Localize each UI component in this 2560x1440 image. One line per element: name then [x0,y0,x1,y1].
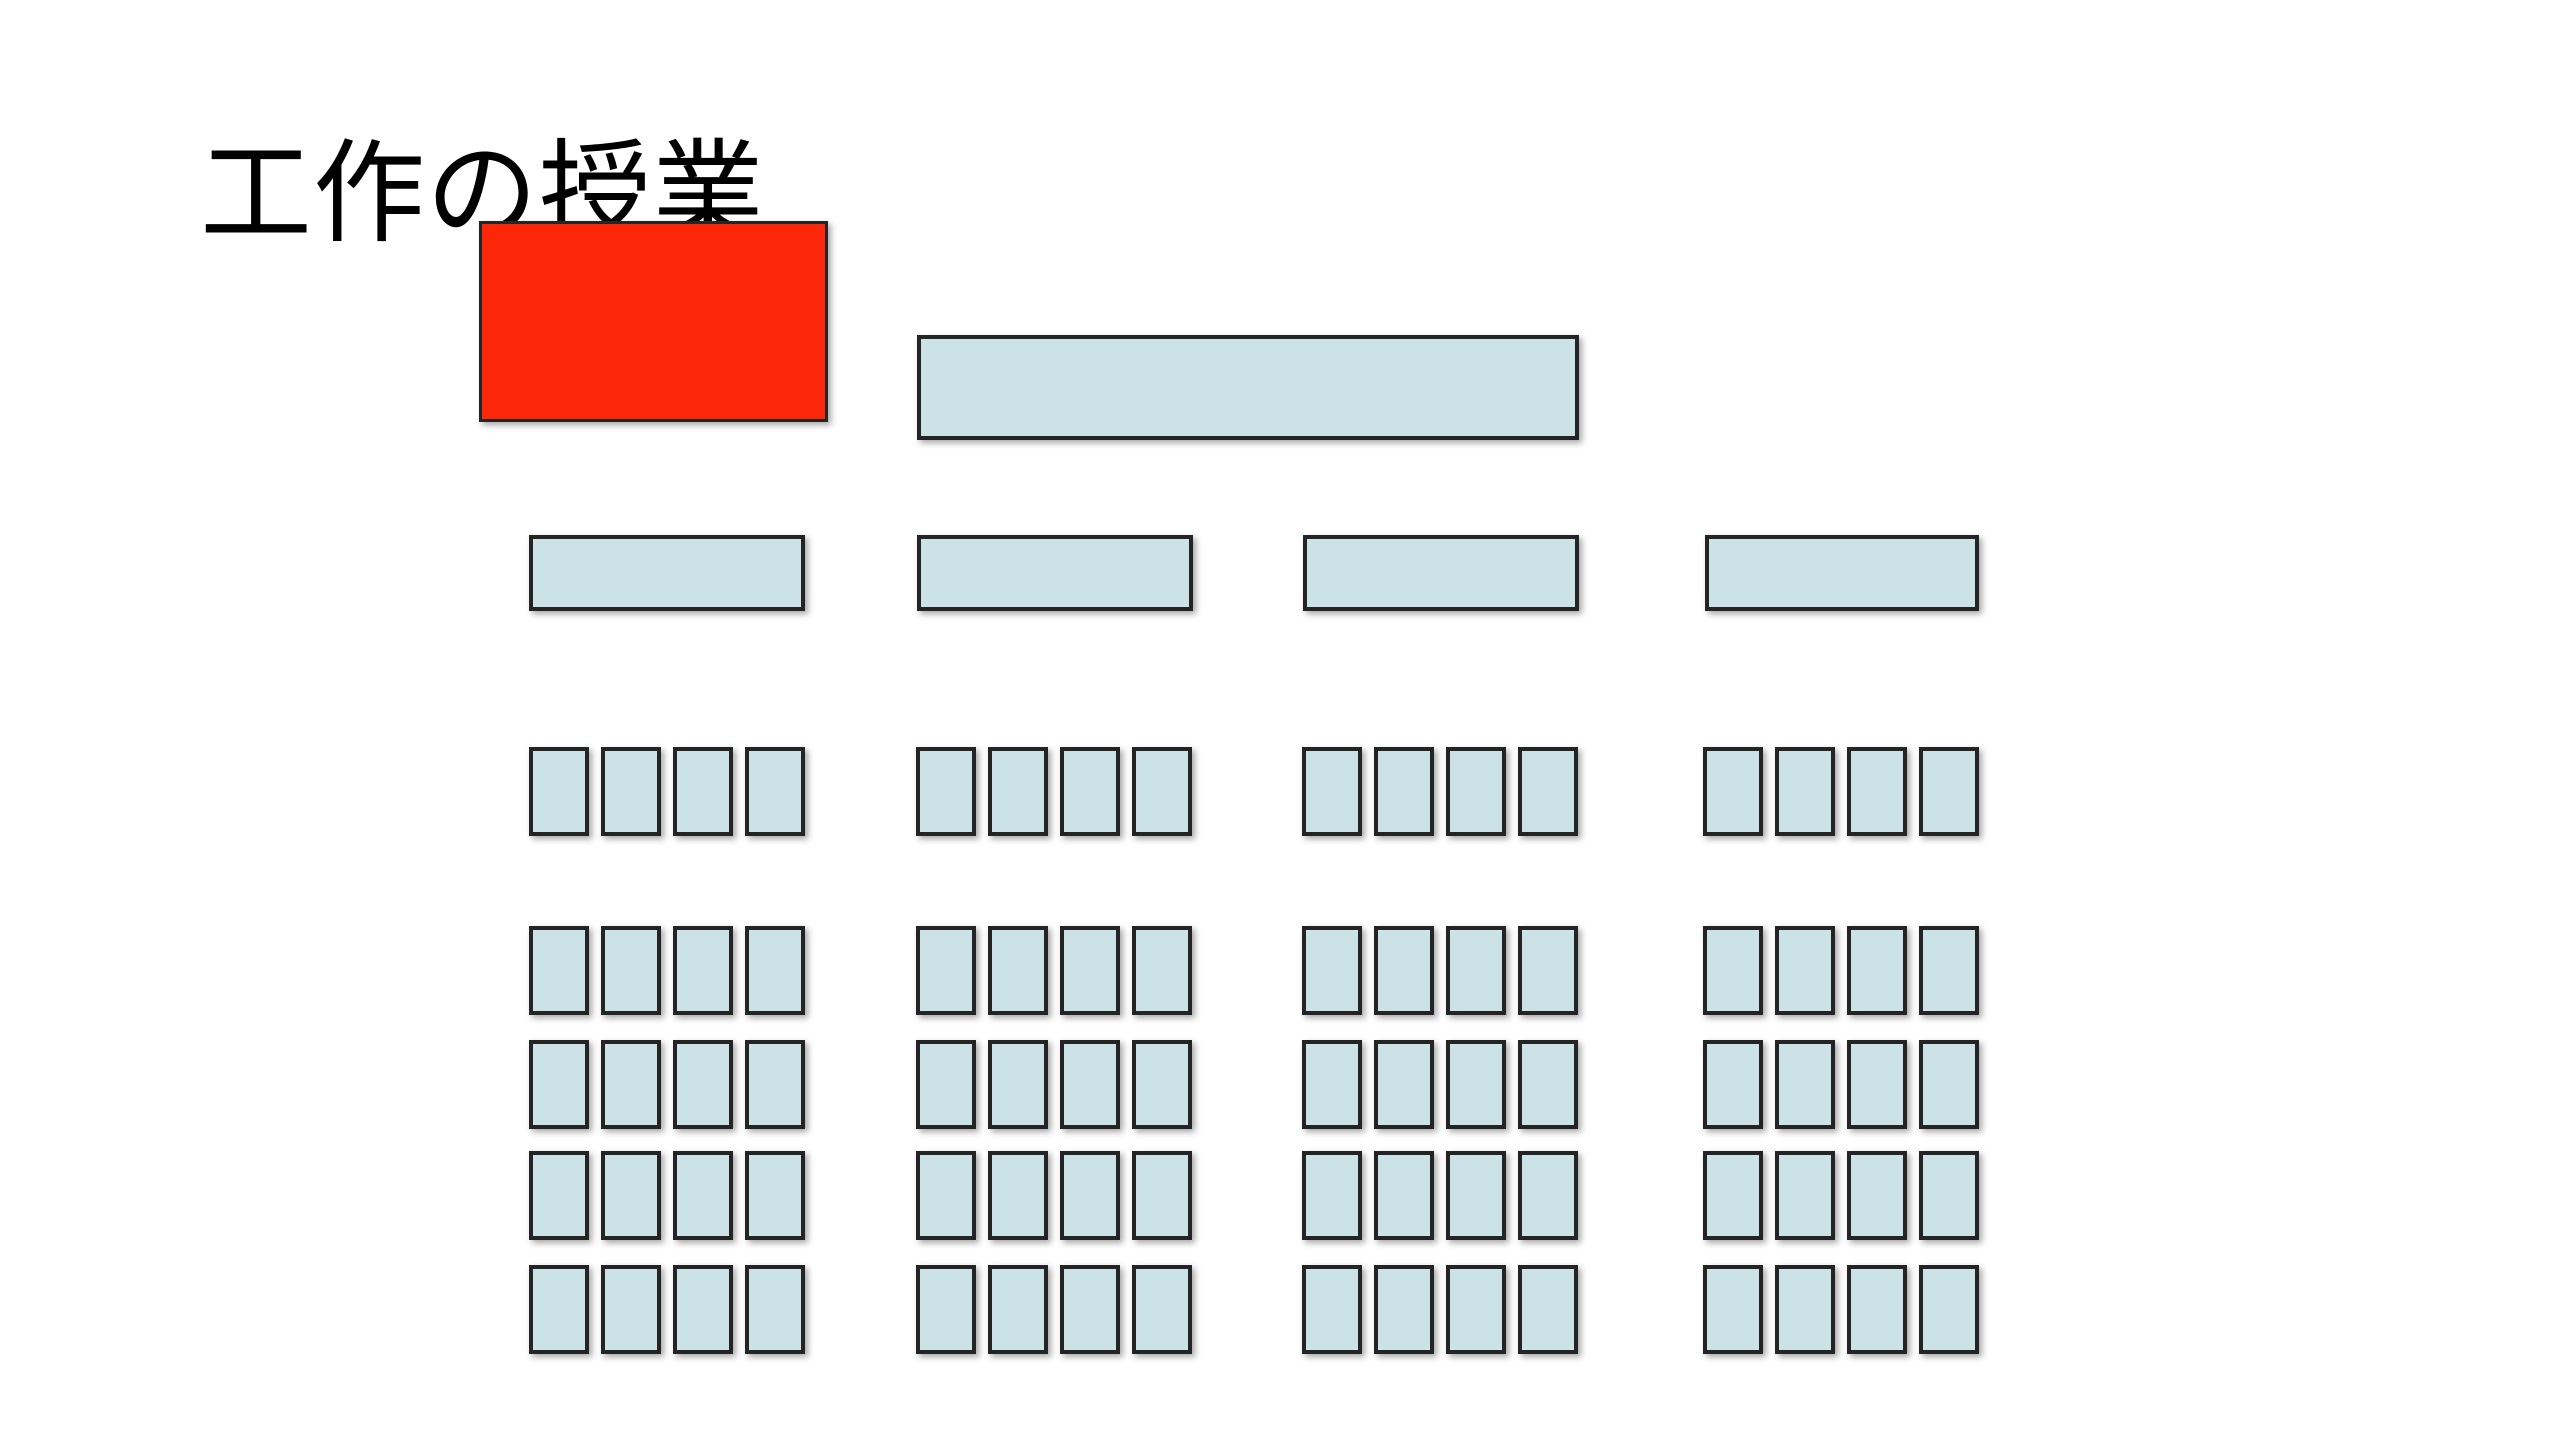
teacher-desk [917,335,1579,440]
seat [1847,747,1907,836]
seat [1060,1265,1120,1354]
seat [1919,1265,1979,1354]
seat [916,1151,976,1240]
seat [745,1265,805,1354]
seat [988,1040,1048,1129]
seat [1847,1040,1907,1129]
seat [1060,1151,1120,1240]
seat [1775,1040,1835,1129]
seat [1302,926,1362,1015]
seat [1775,747,1835,836]
seat [1132,926,1192,1015]
work-table-1 [529,535,805,611]
seat [988,1265,1048,1354]
seat [1847,1265,1907,1354]
seat [1703,747,1763,836]
seat [1060,747,1120,836]
seat [1703,1265,1763,1354]
seat [1703,1151,1763,1240]
seat [1847,1151,1907,1240]
seat [1302,1265,1362,1354]
seat [1132,747,1192,836]
seat [745,1151,805,1240]
seat [529,747,589,836]
seat [1446,1040,1506,1129]
seat [601,1040,661,1129]
seat [1919,1040,1979,1129]
seat [673,926,733,1015]
seat [1919,1151,1979,1240]
seat [1302,747,1362,836]
seat [1775,1265,1835,1354]
seat [601,1151,661,1240]
seat [745,926,805,1015]
seat [529,926,589,1015]
seat [1374,926,1434,1015]
seat [1919,747,1979,836]
seat [988,747,1048,836]
work-table-3 [1303,535,1579,611]
seat [1775,1151,1835,1240]
seat [1060,926,1120,1015]
slide-canvas: 工作の授業 [0,0,2560,1440]
seat [988,926,1048,1015]
seat [916,926,976,1015]
seat [1132,1040,1192,1129]
work-table-2 [917,535,1193,611]
seat [745,1040,805,1129]
seat [1919,926,1979,1015]
seat [916,1265,976,1354]
seat [673,747,733,836]
seat [916,1040,976,1129]
seat [1775,926,1835,1015]
seat [673,1040,733,1129]
seat [601,926,661,1015]
seat [1703,926,1763,1015]
seat [529,1151,589,1240]
seat [1374,1151,1434,1240]
seat [745,747,805,836]
highlight-block [479,221,828,422]
work-table-4 [1705,535,1979,611]
seat [601,747,661,836]
seat [1518,926,1578,1015]
seat [673,1265,733,1354]
seat [1703,1040,1763,1129]
seat [1518,1151,1578,1240]
seat [1132,1265,1192,1354]
seat [1132,1151,1192,1240]
seat [988,1151,1048,1240]
seat [1446,1151,1506,1240]
seat [1518,747,1578,836]
seat [916,747,976,836]
seat [1374,1040,1434,1129]
seat [1446,926,1506,1015]
seat [1446,747,1506,836]
seat [1302,1040,1362,1129]
seat [529,1265,589,1354]
seat [1518,1265,1578,1354]
seat [1374,1265,1434,1354]
seat [1518,1040,1578,1129]
seat [1446,1265,1506,1354]
seat [601,1265,661,1354]
seat [1374,747,1434,836]
seat [1302,1151,1362,1240]
seat [1847,926,1907,1015]
seat [1060,1040,1120,1129]
seat [529,1040,589,1129]
seat [673,1151,733,1240]
